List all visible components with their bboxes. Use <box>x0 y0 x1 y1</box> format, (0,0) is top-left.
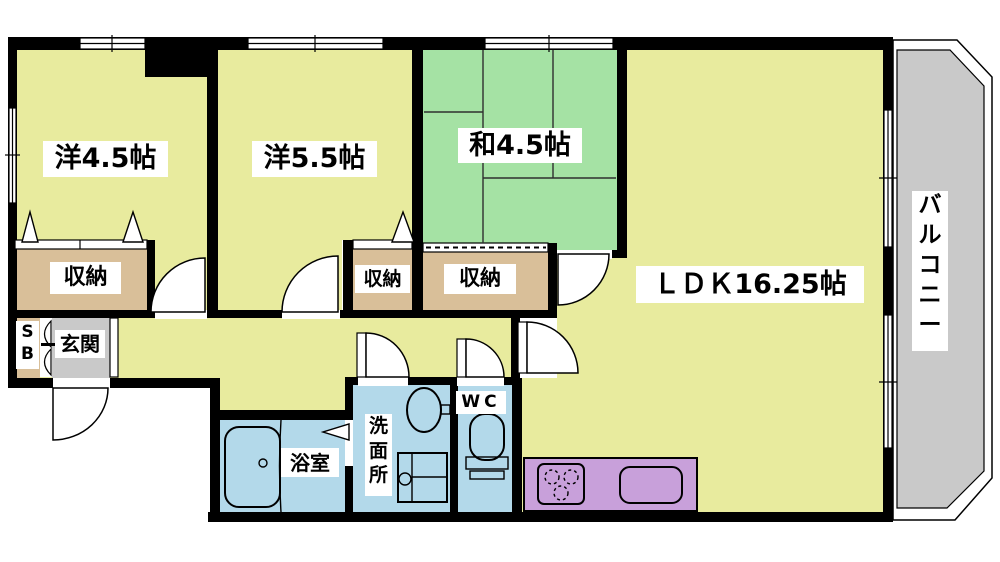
balcony-label: バルコニー <box>912 191 948 351</box>
toilet <box>466 414 508 479</box>
japanese-room-label: 和4.5帖 <box>458 128 582 163</box>
bifold-door-icon <box>22 212 414 242</box>
west-room-2-label: 洋5.5帖 <box>252 141 377 177</box>
bathroom-label: 浴室 <box>281 448 339 477</box>
shoe-box-door-icon <box>40 318 52 377</box>
entrance-pointer-line <box>41 343 56 346</box>
gas-stove <box>538 464 584 504</box>
kitchen-sink <box>620 467 682 503</box>
entrance-label: 玄関 <box>55 330 105 358</box>
door-arc <box>53 254 609 440</box>
ldk-label: ＬＤＫ16.25帖 <box>636 266 864 303</box>
closet-door-line <box>15 240 548 252</box>
shoe-box-label: SB <box>16 321 39 369</box>
storage-3-label: 収納 <box>444 264 516 294</box>
storage-2-label: 収納 <box>355 265 410 293</box>
entrance-step <box>110 318 118 377</box>
wash-basin <box>407 388 450 432</box>
washroom-label: 洗面所 <box>365 414 392 496</box>
washing-machine-pan <box>398 453 447 502</box>
floorplan: 洋4.5帖 洋5.5帖 和4.5帖 ＬＤＫ16.25帖 バルコニー 収納 収納 … <box>0 0 1000 562</box>
west-room-1-label: 洋4.5帖 <box>43 141 168 177</box>
toilet-label: WC <box>456 391 506 414</box>
bathtub <box>225 420 281 512</box>
storage-1-label: 収納 <box>50 262 121 294</box>
